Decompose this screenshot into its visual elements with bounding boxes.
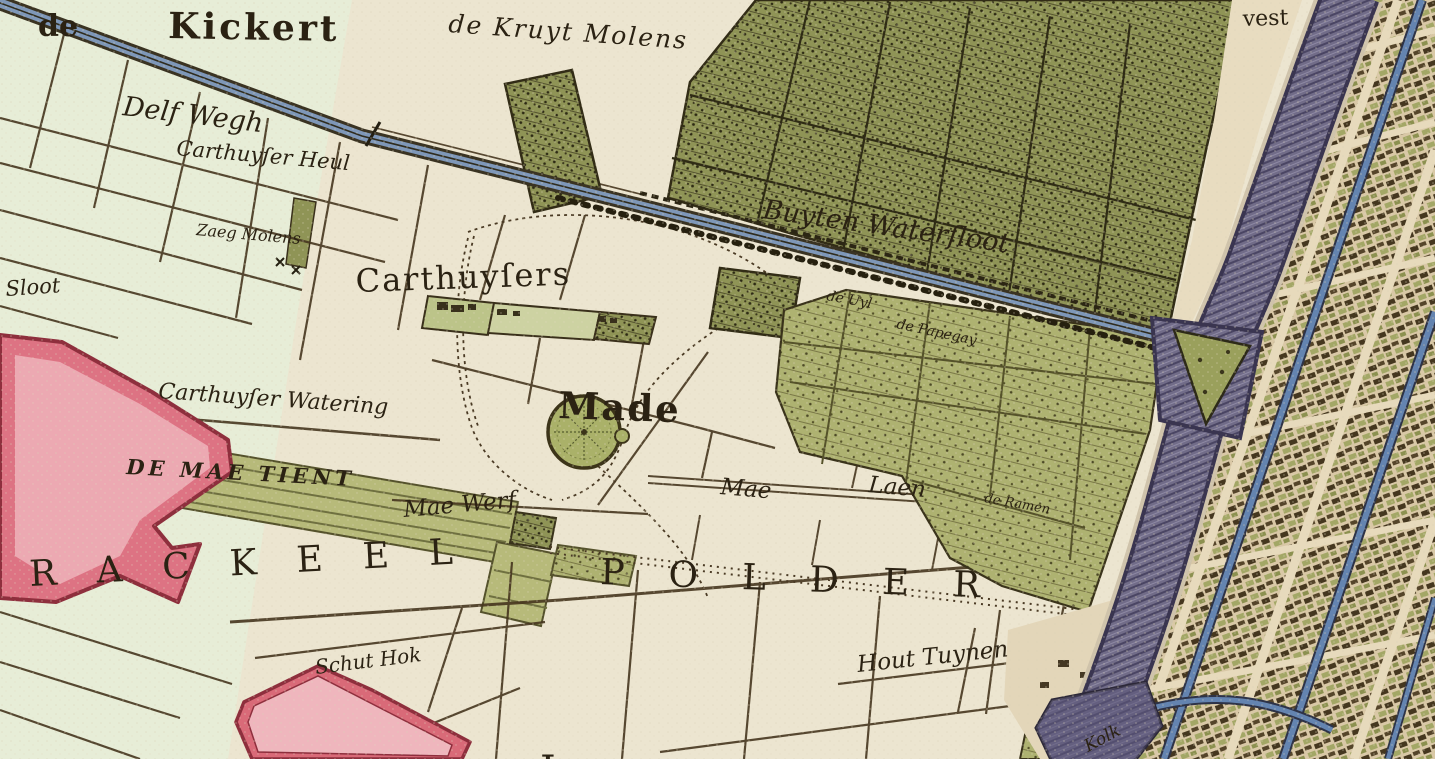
antique-map: de Kickert de Kruyt Molens Delf Wegh Car… [0, 0, 1435, 759]
label-vest: vest [1241, 5, 1289, 32]
label-carthuysers: Carthuyſers [355, 254, 572, 299]
label-partial-letter: L [540, 748, 567, 759]
label-kickert: Kickert [168, 5, 340, 50]
label-made: Made [558, 383, 682, 431]
label-sloot: Sloot [5, 273, 62, 301]
map-canvas[interactable]: de Kickert de Kruyt Molens Delf Wegh Car… [0, 0, 1435, 759]
label-mae: Mae [718, 474, 772, 504]
label-de: de [38, 9, 78, 44]
label-laen: Laen [866, 472, 926, 503]
